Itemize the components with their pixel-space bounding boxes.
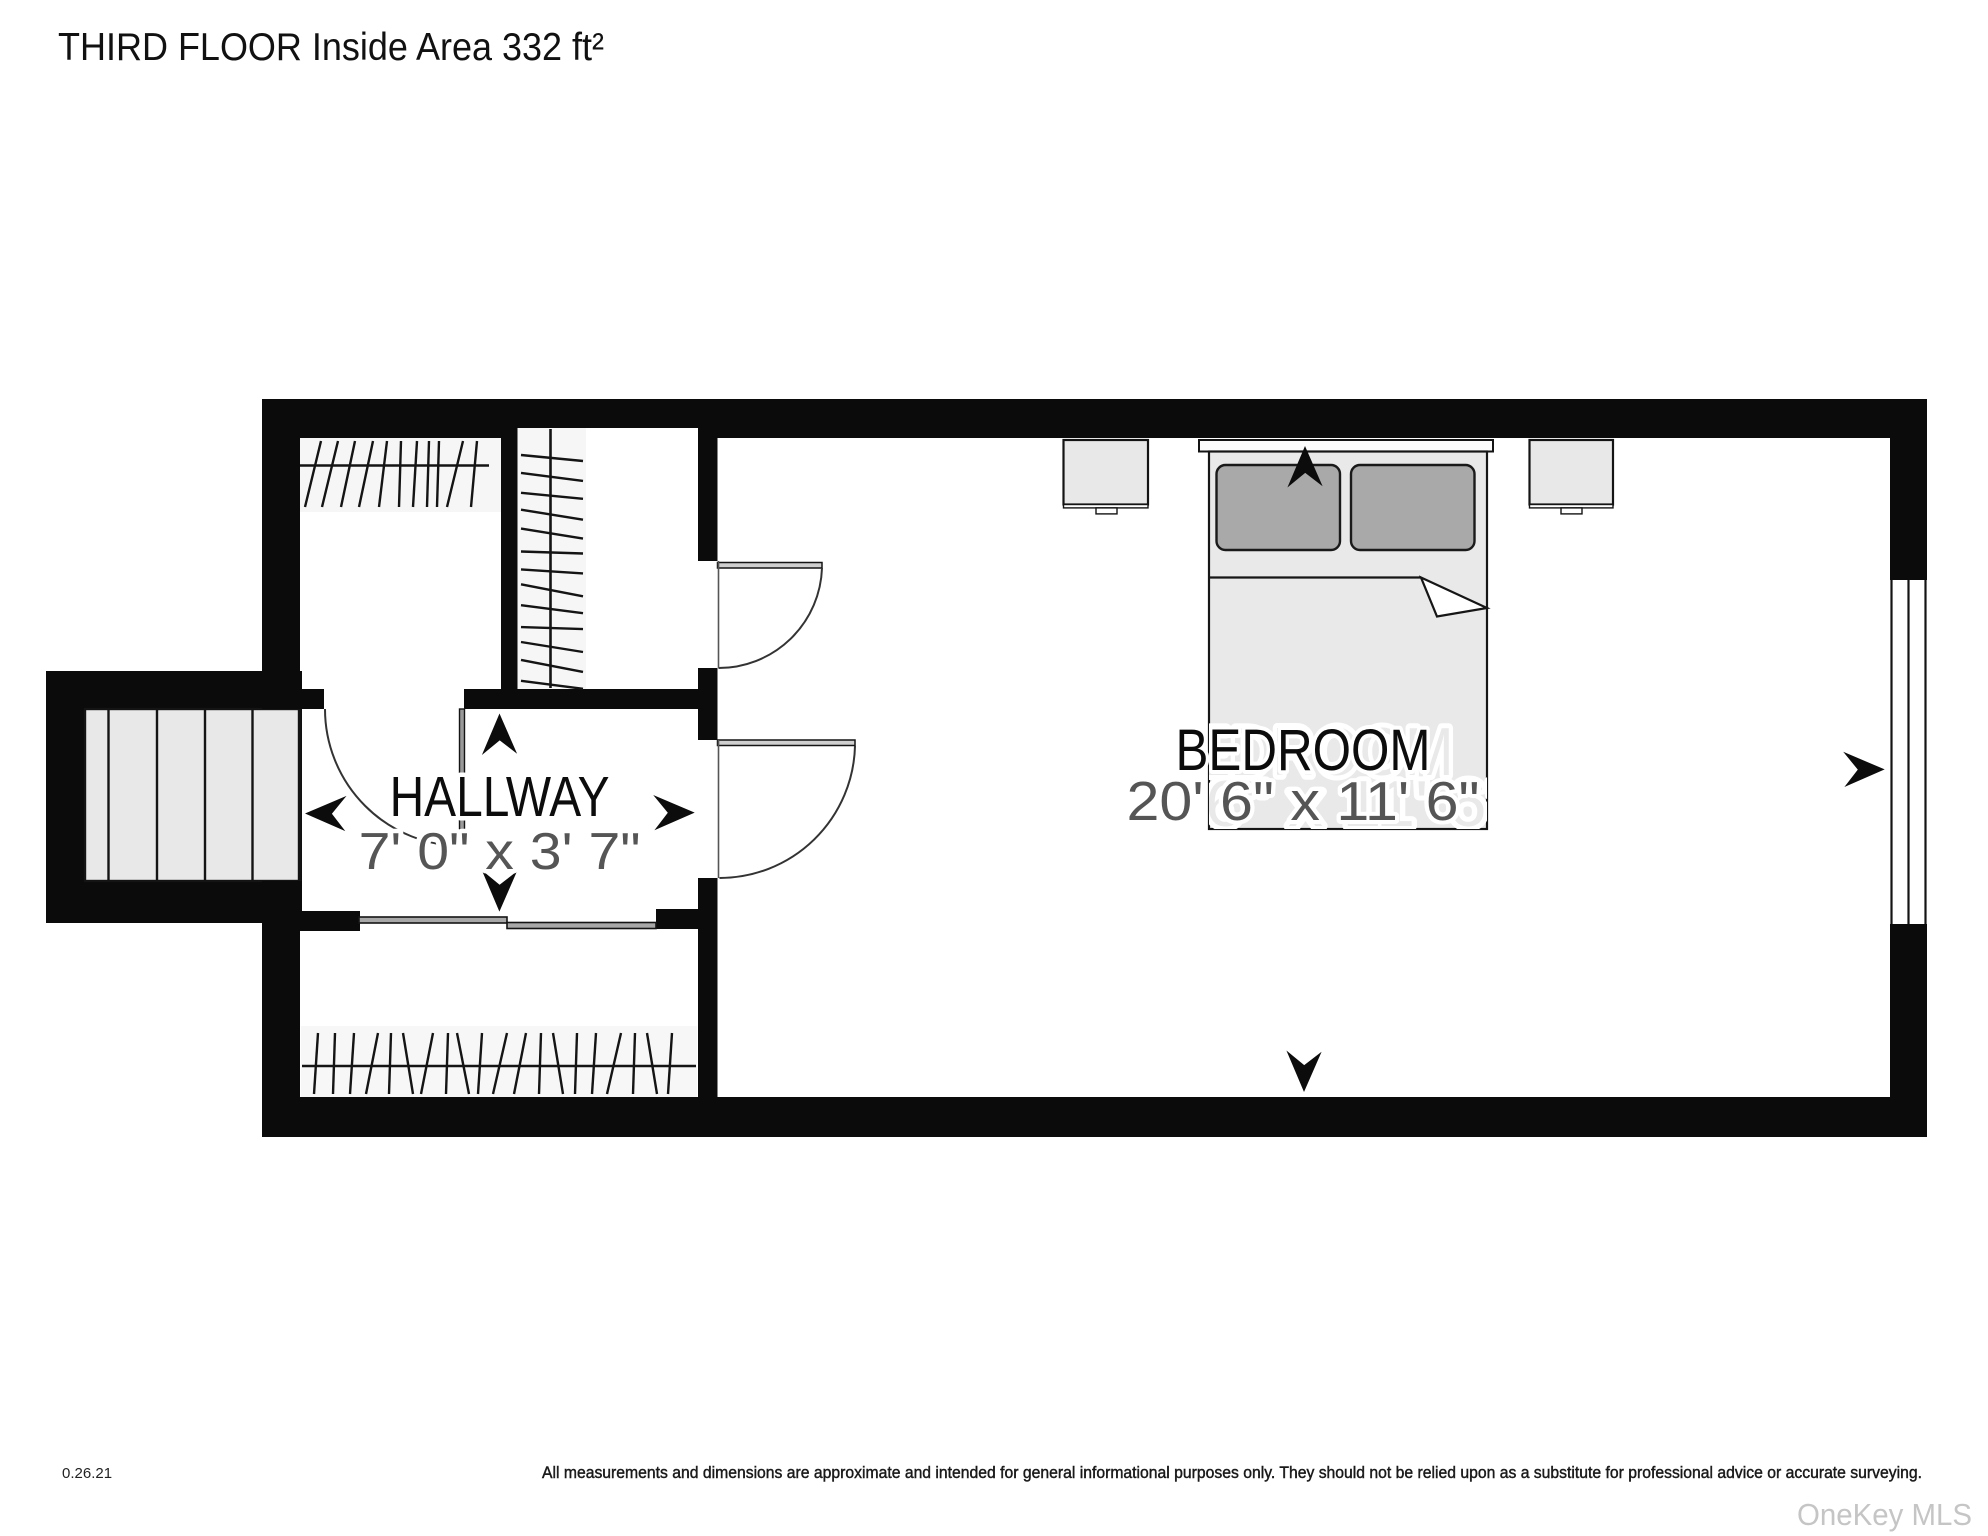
svg-text:20' 6" x 11' 6": 20' 6" x 11' 6" — [1127, 770, 1480, 832]
svg-text:All measurements and dimension: All measurements and dimensions are appr… — [542, 1464, 1922, 1482]
svg-text:THIRD FLOOR Inside Area 332 ft: THIRD FLOOR Inside Area 332 ft² — [58, 26, 604, 69]
svg-text:7' 0" x 3' 7": 7' 0" x 3' 7" — [359, 823, 641, 881]
svg-text:0.26.21: 0.26.21 — [62, 1465, 112, 1482]
svg-text:HALLWAY: HALLWAY — [390, 765, 610, 829]
svg-text:OneKey MLS: OneKey MLS — [1797, 1497, 1972, 1532]
